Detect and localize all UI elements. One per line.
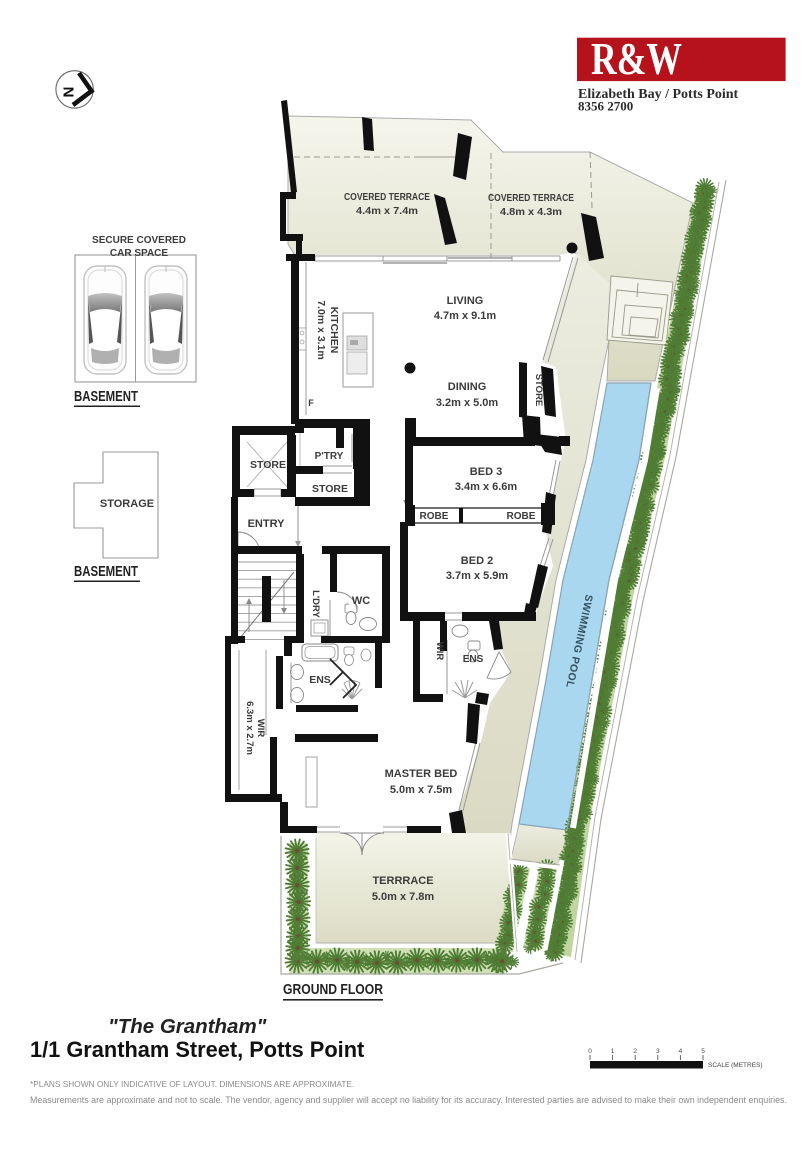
svg-text:4.8m x 4.3m: 4.8m x 4.3m — [500, 206, 562, 218]
svg-text:STORE: STORE — [312, 483, 348, 495]
svg-text:Measurements are approximate a: Measurements are approximate and not to … — [30, 1095, 787, 1105]
svg-text:LIVING: LIVING — [447, 295, 484, 307]
svg-text:7.0m x 3.1m: 7.0m x 3.1m — [315, 300, 327, 360]
svg-text:4.4m x 7.4m: 4.4m x 7.4m — [356, 205, 418, 217]
svg-text:WIR: WIR — [255, 719, 266, 738]
svg-text:BASEMENT: BASEMENT — [74, 564, 138, 580]
svg-text:5.0m x 7.5m: 5.0m x 7.5m — [390, 784, 453, 796]
svg-text:SECURE COVERED: SECURE COVERED — [92, 235, 186, 246]
svg-text:F: F — [308, 398, 314, 408]
svg-text:3: 3 — [656, 1048, 660, 1055]
svg-text:TERRRACE: TERRRACE — [372, 875, 433, 887]
svg-text:3.7m x 5.9m: 3.7m x 5.9m — [446, 570, 509, 582]
svg-text:N: N — [60, 87, 77, 98]
svg-text:DINING: DINING — [448, 381, 487, 393]
svg-text:SCALE (METRES): SCALE (METRES) — [708, 1062, 763, 1069]
svg-text:WIR: WIR — [434, 642, 445, 661]
svg-text:GROUND FLOOR: GROUND FLOOR — [283, 982, 383, 998]
svg-text:COVERED TERRACE: COVERED TERRACE — [488, 192, 574, 204]
svg-text:COVERED TERRACE: COVERED TERRACE — [344, 191, 430, 203]
svg-text:ROBE: ROBE — [507, 511, 536, 522]
svg-text:ENS: ENS — [463, 654, 484, 665]
svg-text:CAR SPACE: CAR SPACE — [110, 248, 168, 259]
svg-text:BED 3: BED 3 — [470, 466, 502, 478]
svg-text:BED 2: BED 2 — [461, 555, 493, 567]
svg-text:8356 2700: 8356 2700 — [578, 99, 633, 114]
svg-text:*PLANS SHOWN ONLY INDICATIVE O: *PLANS SHOWN ONLY INDICATIVE OF LAYOUT. … — [30, 1079, 354, 1089]
svg-text:ENTRY: ENTRY — [248, 518, 286, 530]
svg-text:L'DRY: L'DRY — [310, 590, 321, 618]
svg-text:1: 1 — [611, 1048, 615, 1055]
svg-text:STORE: STORE — [250, 459, 286, 471]
svg-text:WC: WC — [352, 595, 370, 607]
svg-text:4.7m x 9.1m: 4.7m x 9.1m — [434, 310, 497, 322]
svg-text:4: 4 — [679, 1048, 683, 1055]
svg-text:3.2m x 5.0m: 3.2m x 5.0m — [436, 397, 499, 409]
svg-text:5.0m x 7.8m: 5.0m x 7.8m — [372, 891, 435, 903]
svg-text:STORAGE: STORAGE — [100, 498, 154, 510]
svg-text:MASTER BED: MASTER BED — [385, 768, 458, 780]
svg-text:P'TRY: P'TRY — [315, 451, 344, 462]
svg-text:"The Grantham": "The Grantham" — [108, 1015, 267, 1038]
svg-text:ENS: ENS — [309, 674, 331, 686]
svg-text:2: 2 — [633, 1048, 637, 1055]
svg-text:R&W: R&W — [591, 33, 682, 84]
svg-text:ROBE: ROBE — [420, 511, 449, 522]
svg-text:STORE: STORE — [533, 374, 544, 407]
svg-text:BASEMENT: BASEMENT — [74, 389, 138, 405]
svg-text:0: 0 — [588, 1048, 592, 1055]
svg-text:KITCHEN: KITCHEN — [328, 307, 340, 354]
svg-text:3.4m x 6.6m: 3.4m x 6.6m — [455, 481, 518, 493]
svg-text:1/1 Grantham Street, Potts Poi: 1/1 Grantham Street, Potts Point — [30, 1037, 364, 1062]
svg-text:5: 5 — [701, 1048, 705, 1055]
svg-text:6.3m x 2.7m: 6.3m x 2.7m — [244, 701, 255, 755]
